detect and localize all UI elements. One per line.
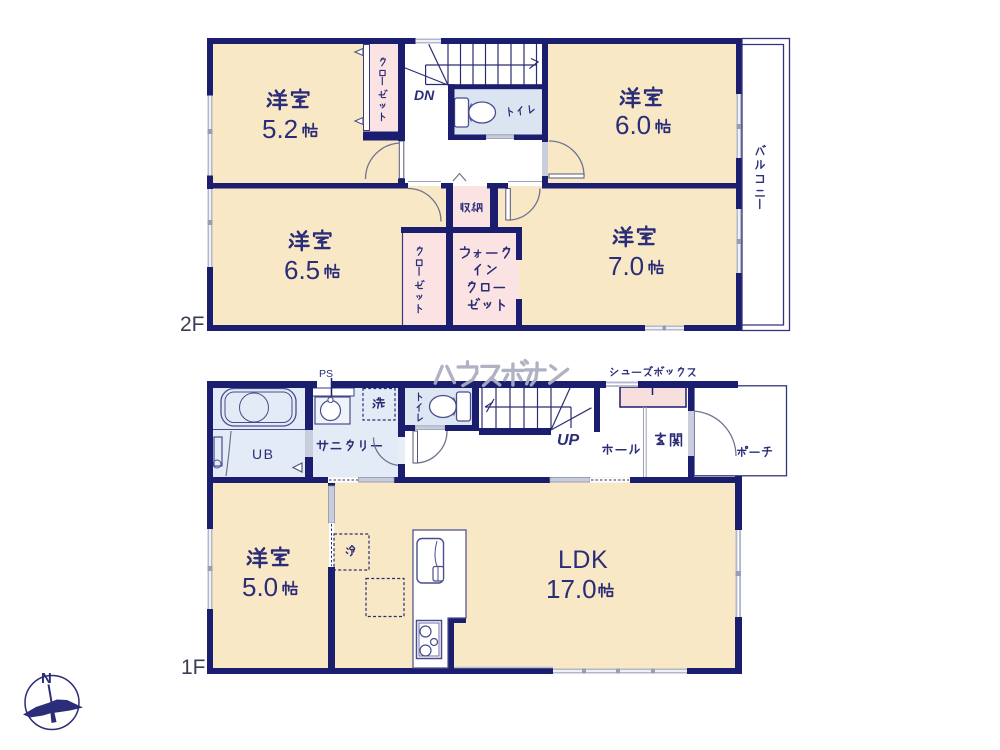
svg-text:UP: UP xyxy=(557,432,580,449)
svg-text:N: N xyxy=(41,670,52,687)
svg-text:5.0: 5.0 xyxy=(242,572,278,602)
svg-text:1F: 1F xyxy=(181,656,206,679)
svg-text:UB: UB xyxy=(252,446,274,462)
svg-text:PS: PS xyxy=(319,368,333,380)
svg-text:6.5: 6.5 xyxy=(284,255,320,285)
svg-text:7.0: 7.0 xyxy=(608,251,644,281)
svg-text:DN: DN xyxy=(414,87,435,103)
svg-text:2F: 2F xyxy=(180,313,205,336)
svg-text:5.2: 5.2 xyxy=(262,114,298,144)
svg-text:6.0: 6.0 xyxy=(615,110,651,140)
svg-text:LDK: LDK xyxy=(558,546,608,574)
svg-text:17.0: 17.0 xyxy=(546,574,597,604)
